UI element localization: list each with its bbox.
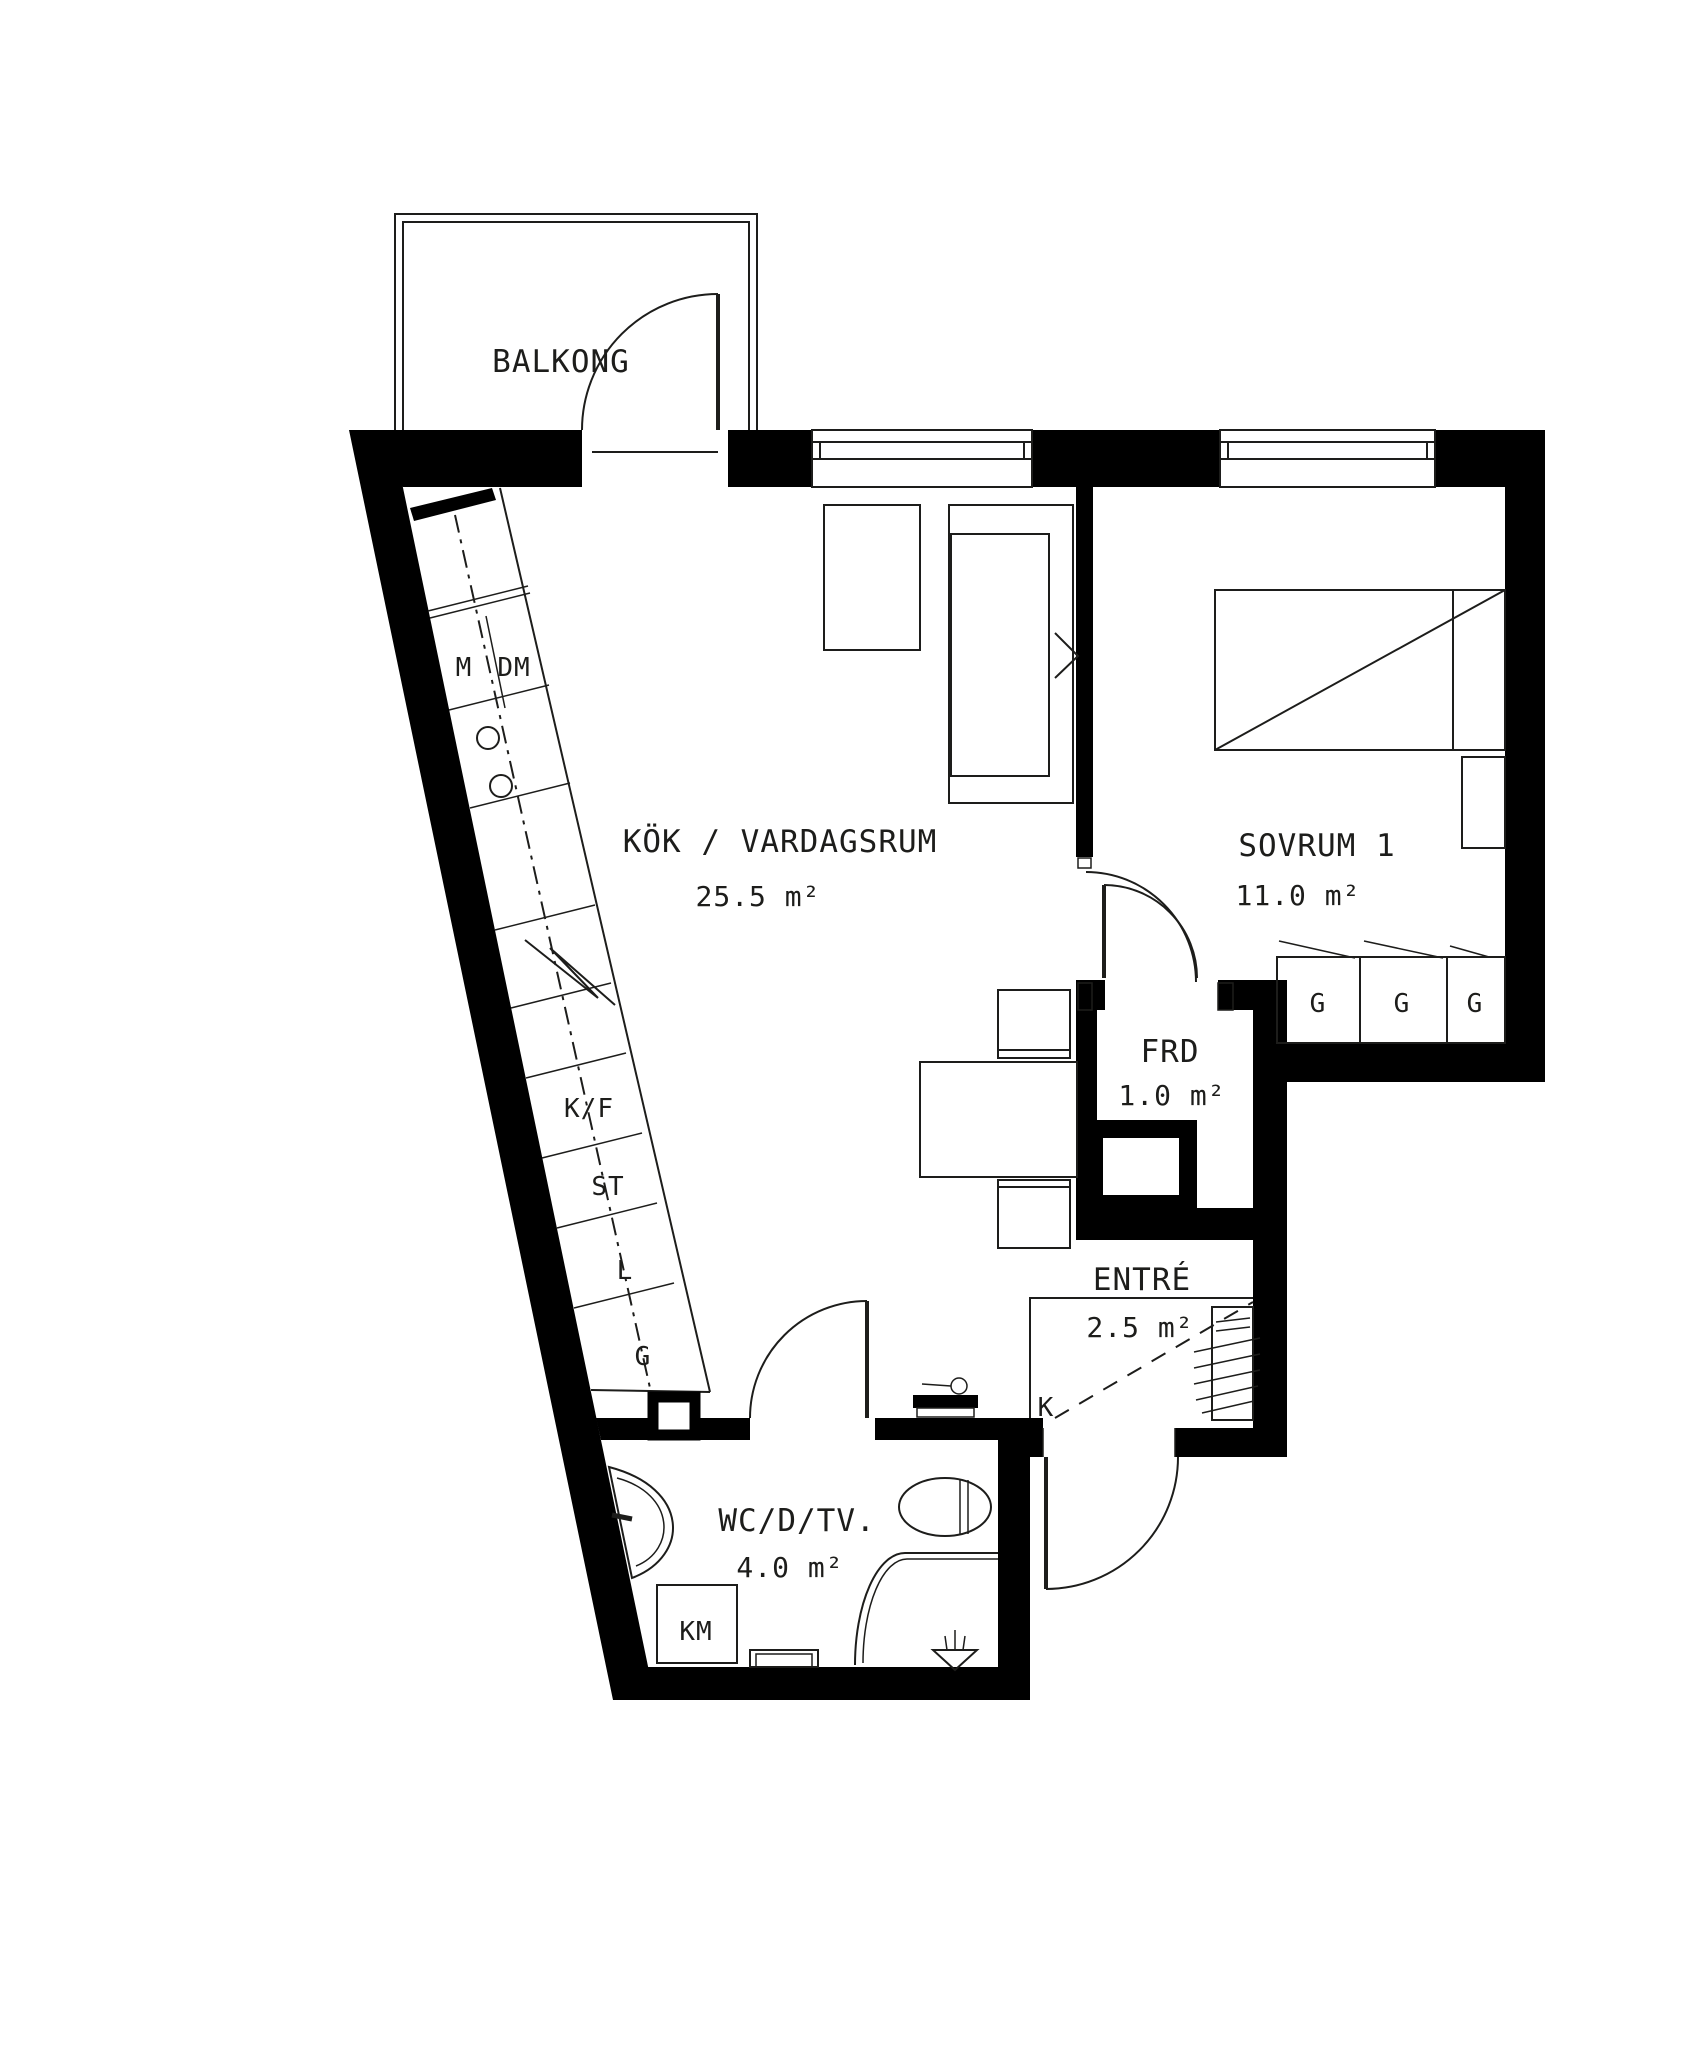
wall-bedroom-bottom [1277, 1043, 1545, 1082]
floor-plan-svg: BALKONG KÖK / VARDAGSRUM 25.5 m² SOVRUM … [0, 0, 1703, 2048]
shaft-box [1094, 1129, 1188, 1204]
room-label-storage: FRD [1141, 1034, 1200, 1070]
wall-right [1505, 430, 1545, 1082]
wall-entry-right [1175, 1428, 1287, 1457]
wall-frd-top-right [1218, 980, 1253, 1010]
wall-top-mid1 [728, 430, 812, 487]
room-label-entrance: ENTRÉ [1093, 1262, 1191, 1298]
floor-plan-page: BALKONG KÖK / VARDAGSRUM 25.5 m² SOVRUM … [0, 0, 1703, 2048]
room-label-bathroom: WC/D/TV. [718, 1503, 875, 1539]
entrance-k-label: K [1038, 1393, 1055, 1423]
wardrobe-label-2: G [1394, 989, 1411, 1019]
room-area-bathroom: 4.0 m² [736, 1551, 843, 1584]
wall-bottom [613, 1667, 1030, 1700]
wardrobe-label-1: G [1310, 989, 1327, 1019]
room-label-bedroom: SOVRUM 1 [1238, 828, 1395, 864]
kitchen-label-fridge: K/F [564, 1094, 614, 1124]
wall-frd-top-left [1076, 980, 1105, 1010]
wall-top-mid2 [1032, 430, 1220, 487]
wall-partition-bedroom [1076, 487, 1093, 857]
kitchen-label-wardrobe: G [635, 1342, 652, 1372]
room-area-living: 25.5 m² [695, 880, 820, 913]
room-area-bedroom: 11.0 m² [1235, 879, 1360, 912]
wardrobe-label-3: G [1467, 989, 1484, 1019]
kitchen-label-micro: M [456, 653, 473, 683]
room-label-living: KÖK / VARDAGSRUM [623, 823, 938, 860]
washing-machine-label: KM [679, 1617, 712, 1647]
room-label-balcony: BALKONG [492, 344, 630, 380]
wall-wc-right [998, 1440, 1030, 1700]
counter-end-post [653, 1397, 695, 1435]
kitchen-label-linen: L [617, 1256, 634, 1286]
kitchen-label-dishwasher: DM [497, 653, 530, 683]
room-area-entrance: 2.5 m² [1086, 1311, 1193, 1344]
radiator-body [913, 1395, 978, 1408]
kitchen-label-st: ST [591, 1172, 624, 1202]
room-area-storage: 1.0 m² [1118, 1079, 1225, 1112]
